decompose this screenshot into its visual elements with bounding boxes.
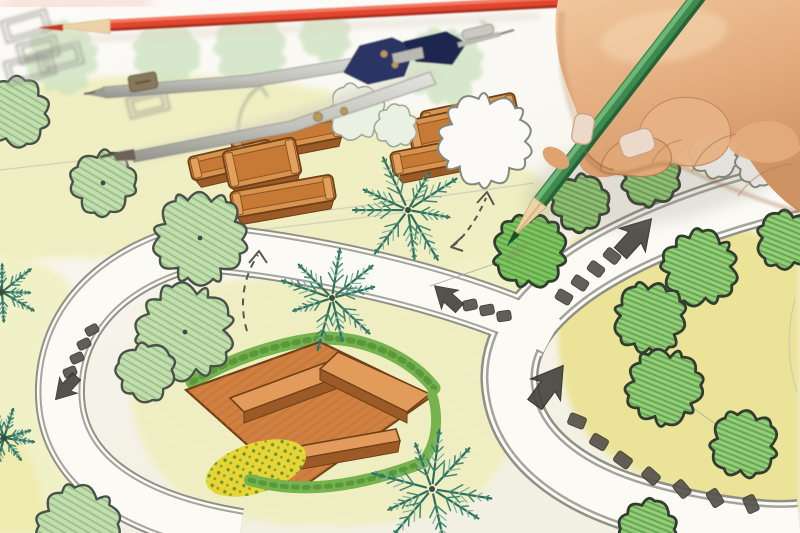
fern-barb	[467, 511, 473, 512]
fern-barb	[19, 458, 20, 460]
fern-barb	[434, 255, 435, 259]
head-screw	[381, 51, 388, 58]
fern-barb	[2, 266, 3, 267]
brass-screw	[340, 107, 347, 114]
fern-barb	[386, 159, 387, 163]
fern-barb	[3, 319, 4, 321]
fern-barb	[21, 302, 27, 303]
fern-barb	[16, 454, 18, 457]
blurred-red-object	[0, 1, 150, 5]
fern-barb	[454, 456, 455, 465]
scene-canvas	[0, 0, 800, 533]
fern-barb	[466, 452, 470, 453]
fern-barb	[452, 181, 456, 182]
stepping-stone	[496, 310, 511, 322]
shrub	[758, 210, 800, 270]
photo-landscape-blueprint	[0, 0, 800, 533]
head-screw	[392, 62, 398, 68]
shrub-hatch	[493, 215, 565, 287]
tree-center-dot	[183, 330, 188, 335]
fern-barb	[27, 293, 28, 294]
fern-barb	[394, 530, 398, 531]
fern-barb	[28, 431, 30, 432]
tree-center-dot	[198, 236, 203, 241]
fern-barb	[420, 503, 421, 518]
fern-barb	[460, 452, 461, 458]
shrub	[710, 411, 777, 478]
shrub	[615, 282, 686, 353]
fern-barb	[417, 445, 418, 448]
fern-barb	[390, 507, 393, 508]
fern-barb	[31, 309, 32, 311]
shrub-pencil-target	[493, 215, 565, 287]
fern-center	[429, 486, 435, 492]
brass-screw	[314, 113, 323, 122]
fern-frond	[5, 292, 30, 293]
stepping-stone	[462, 299, 478, 312]
tree-center-dot	[101, 181, 106, 186]
stepping-stone	[479, 304, 495, 316]
fern-barb	[460, 506, 469, 507]
